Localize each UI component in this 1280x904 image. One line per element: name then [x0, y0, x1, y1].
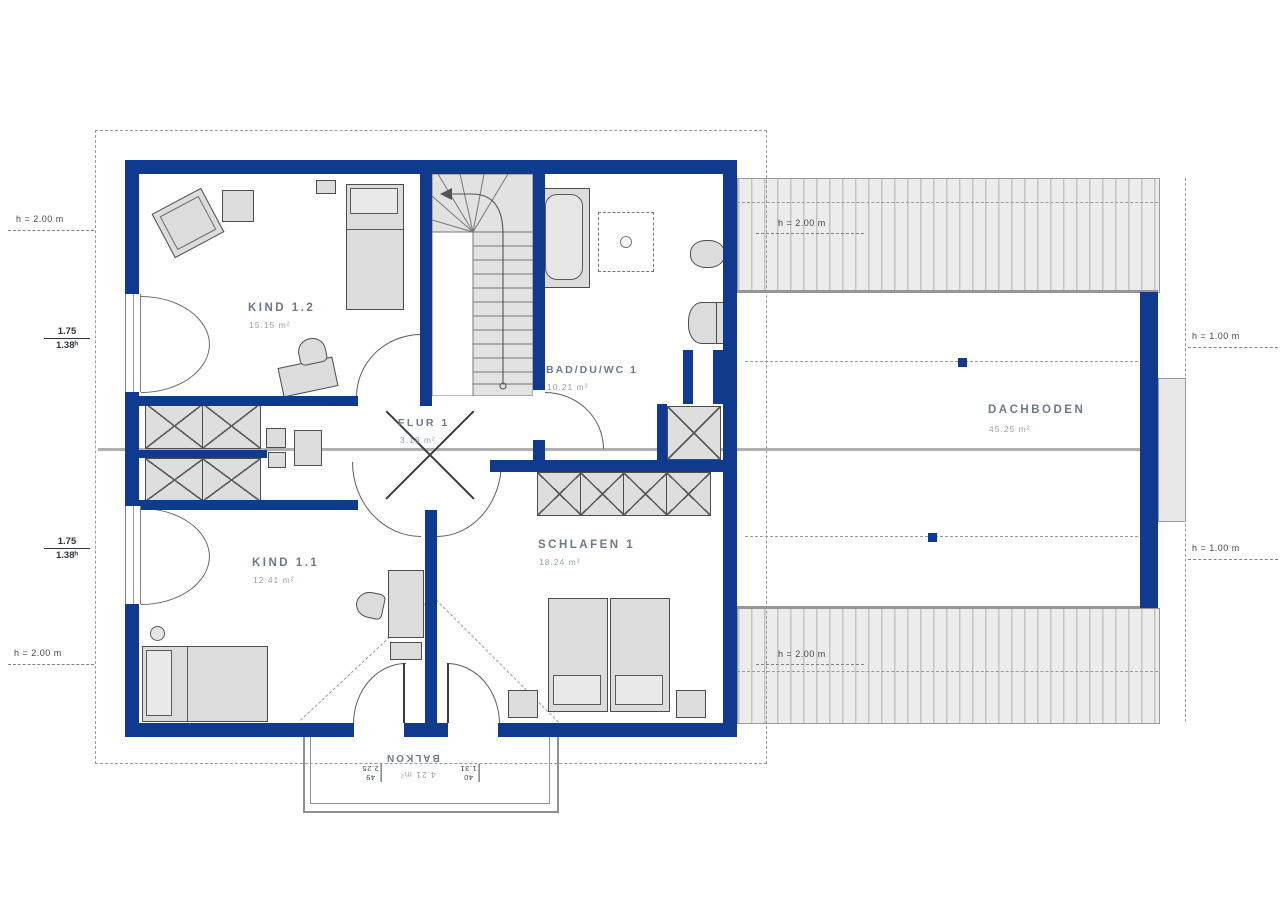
wall-right: [723, 160, 737, 737]
dim-attic-top-line: [756, 233, 864, 234]
wall-wc-niche-a: [683, 350, 693, 404]
attic-roof-hatch-bottom: [737, 608, 1160, 724]
room-label-kind12: KIND 1.2: [248, 302, 315, 314]
room-area-flur: 3.18 m²: [400, 435, 436, 445]
room-label-dachboden: DACHBODEN: [988, 404, 1085, 416]
window-kind12: [125, 294, 141, 392]
window-kind11: [125, 506, 141, 604]
side-table-kind12: [222, 190, 254, 222]
nightstand-right: [676, 690, 706, 718]
balkon-dim-left: 49 2.25: [362, 764, 382, 782]
room-label-kind11: KIND 1.1: [252, 557, 319, 569]
wall-bad-stub: [533, 440, 545, 462]
wall-stair-right: [533, 174, 545, 390]
wardrobe-bad-niche: [667, 406, 721, 460]
roof-dashline-top: [737, 202, 1158, 203]
room-area-schlafen: 18.24 m²: [539, 557, 581, 567]
bathtub: [540, 188, 590, 288]
dim-left-bottom: h = 2.00 m: [14, 648, 62, 658]
dim-attic-bottom-line: [756, 664, 864, 665]
balkon-dim-right-small: 40: [460, 773, 477, 782]
wall-bottom-left: [125, 723, 354, 737]
dim-left-bottom-line: [8, 664, 94, 665]
door-leaf-balkon-left: [403, 663, 405, 723]
room-label-flur: FLUR 1: [398, 417, 450, 429]
blanket-line: [187, 647, 188, 721]
wall-schlafen-top: [490, 460, 723, 472]
wall-wardrobe-mid: [139, 450, 267, 458]
floor-lamp-kind11: [150, 626, 165, 641]
toilet-bowl: [688, 302, 718, 344]
balkon-dim-right-val: 1.31: [460, 764, 477, 773]
bathtub-inner: [545, 194, 583, 280]
roof-dashline-bottom: [737, 671, 1158, 672]
bed-schlafen-right: [610, 598, 670, 712]
balkon-dim-left-val: 2.25: [362, 764, 379, 773]
wall-left-upper: [125, 160, 139, 294]
wardrobe-schlafen-b: [580, 472, 625, 516]
balkon-dim-right: 40 1.31: [460, 764, 480, 782]
knee-lower-num: 1.75: [44, 536, 90, 549]
wardrobe-kind12-b: [202, 403, 261, 449]
attic-roof-hatch-top: [737, 178, 1160, 293]
dim-left-top: h = 2.00 m: [16, 214, 64, 224]
wall-top: [125, 160, 737, 174]
floor-plan: DACHBODEN 45.25 m² h = 2.00 m h = 2.00 m…: [0, 0, 1280, 904]
wardrobe-kind12-a: [145, 403, 204, 449]
bed-kind12: [346, 184, 404, 310]
room-area-kind11: 12.41 m²: [253, 575, 295, 585]
wall-bottom-right: [498, 723, 737, 737]
wardrobe-schlafen-c: [623, 472, 668, 516]
height-line-1m-bottom: [745, 536, 1138, 537]
wardrobe-kind11-b: [202, 458, 261, 502]
knee-upper-den: 1.38ʰ: [44, 339, 90, 351]
wall-left-mid: [125, 392, 139, 506]
pillow-schlafen-right: [615, 675, 663, 705]
speaker-box-b: [268, 452, 286, 468]
wall-kind12-bottom: [139, 396, 358, 406]
dim-left-top-line: [8, 230, 94, 231]
desk-kind11: [388, 570, 424, 638]
room-area-dachboden: 45.25 m²: [989, 424, 1031, 434]
wall-niche-left: [657, 404, 667, 460]
room-area-kind12: 15.15 m²: [249, 320, 291, 330]
attic-edge-bottom: [737, 606, 1158, 609]
room-area-bad: 10.21 m²: [547, 382, 589, 392]
nightstand-left: [508, 690, 538, 718]
dim-right-bottom: h = 1.00 m: [1192, 543, 1240, 553]
radiator-kind12: [316, 180, 336, 194]
blanket-line: [347, 229, 403, 230]
dim-right-bottom-line: [1188, 559, 1278, 560]
balkon-dim-left-small: 49: [362, 773, 379, 782]
wardrobe-schlafen-a: [537, 472, 582, 516]
speaker-box-a: [266, 428, 286, 448]
wall-stair-left: [420, 174, 432, 406]
wall-kind11-top: [139, 500, 358, 510]
pillow-kind12: [350, 188, 398, 214]
knee-height-upper: 1.75 1.38ʰ: [44, 326, 90, 351]
room-area-balkon: 4.21 m²: [400, 770, 436, 780]
pillow-kind11: [146, 650, 172, 716]
washbasin: [690, 240, 725, 268]
bed-kind11: [142, 646, 268, 722]
height-line-1m-top: [745, 361, 1138, 362]
wardrobe-schlafen-d: [666, 472, 711, 516]
attic-post-1: [958, 358, 967, 367]
dim-right-top-line: [1188, 347, 1278, 348]
shelf-kind11: [390, 642, 422, 660]
dim-attic-top: h = 2.00 m: [778, 218, 826, 228]
room-label-schlafen: SCHLAFEN 1: [538, 539, 635, 551]
gable-wall: [1140, 292, 1158, 608]
door-leaf-balkon-right: [447, 663, 449, 723]
wardrobe-kind11-a: [145, 458, 204, 502]
shelf-box: [294, 430, 322, 466]
shower-drain-icon: [620, 236, 632, 248]
room-label-balkon: BALKON: [385, 752, 440, 763]
bed-schlafen-left: [548, 598, 608, 712]
knee-upper-num: 1.75: [44, 326, 90, 339]
knee-height-lower: 1.75 1.38ʰ: [44, 536, 90, 561]
wall-bottom-center: [404, 723, 448, 737]
wall-wc-niche-b: [713, 350, 723, 404]
attic-post-2: [928, 533, 937, 542]
knee-lower-den: 1.38ʰ: [44, 549, 90, 561]
pillow-schlafen-left: [553, 675, 601, 705]
roof-side-panel: [1158, 378, 1186, 522]
wall-left-lower: [125, 604, 139, 737]
attic-edge-top: [737, 290, 1158, 293]
dim-attic-bottom: h = 2.00 m: [778, 649, 826, 659]
wall-kind11-schlafen: [425, 510, 437, 723]
staircase: [432, 174, 533, 396]
dim-right-top: h = 1.00 m: [1192, 331, 1240, 341]
room-label-bad: BAD/DU/WC 1: [546, 364, 638, 376]
